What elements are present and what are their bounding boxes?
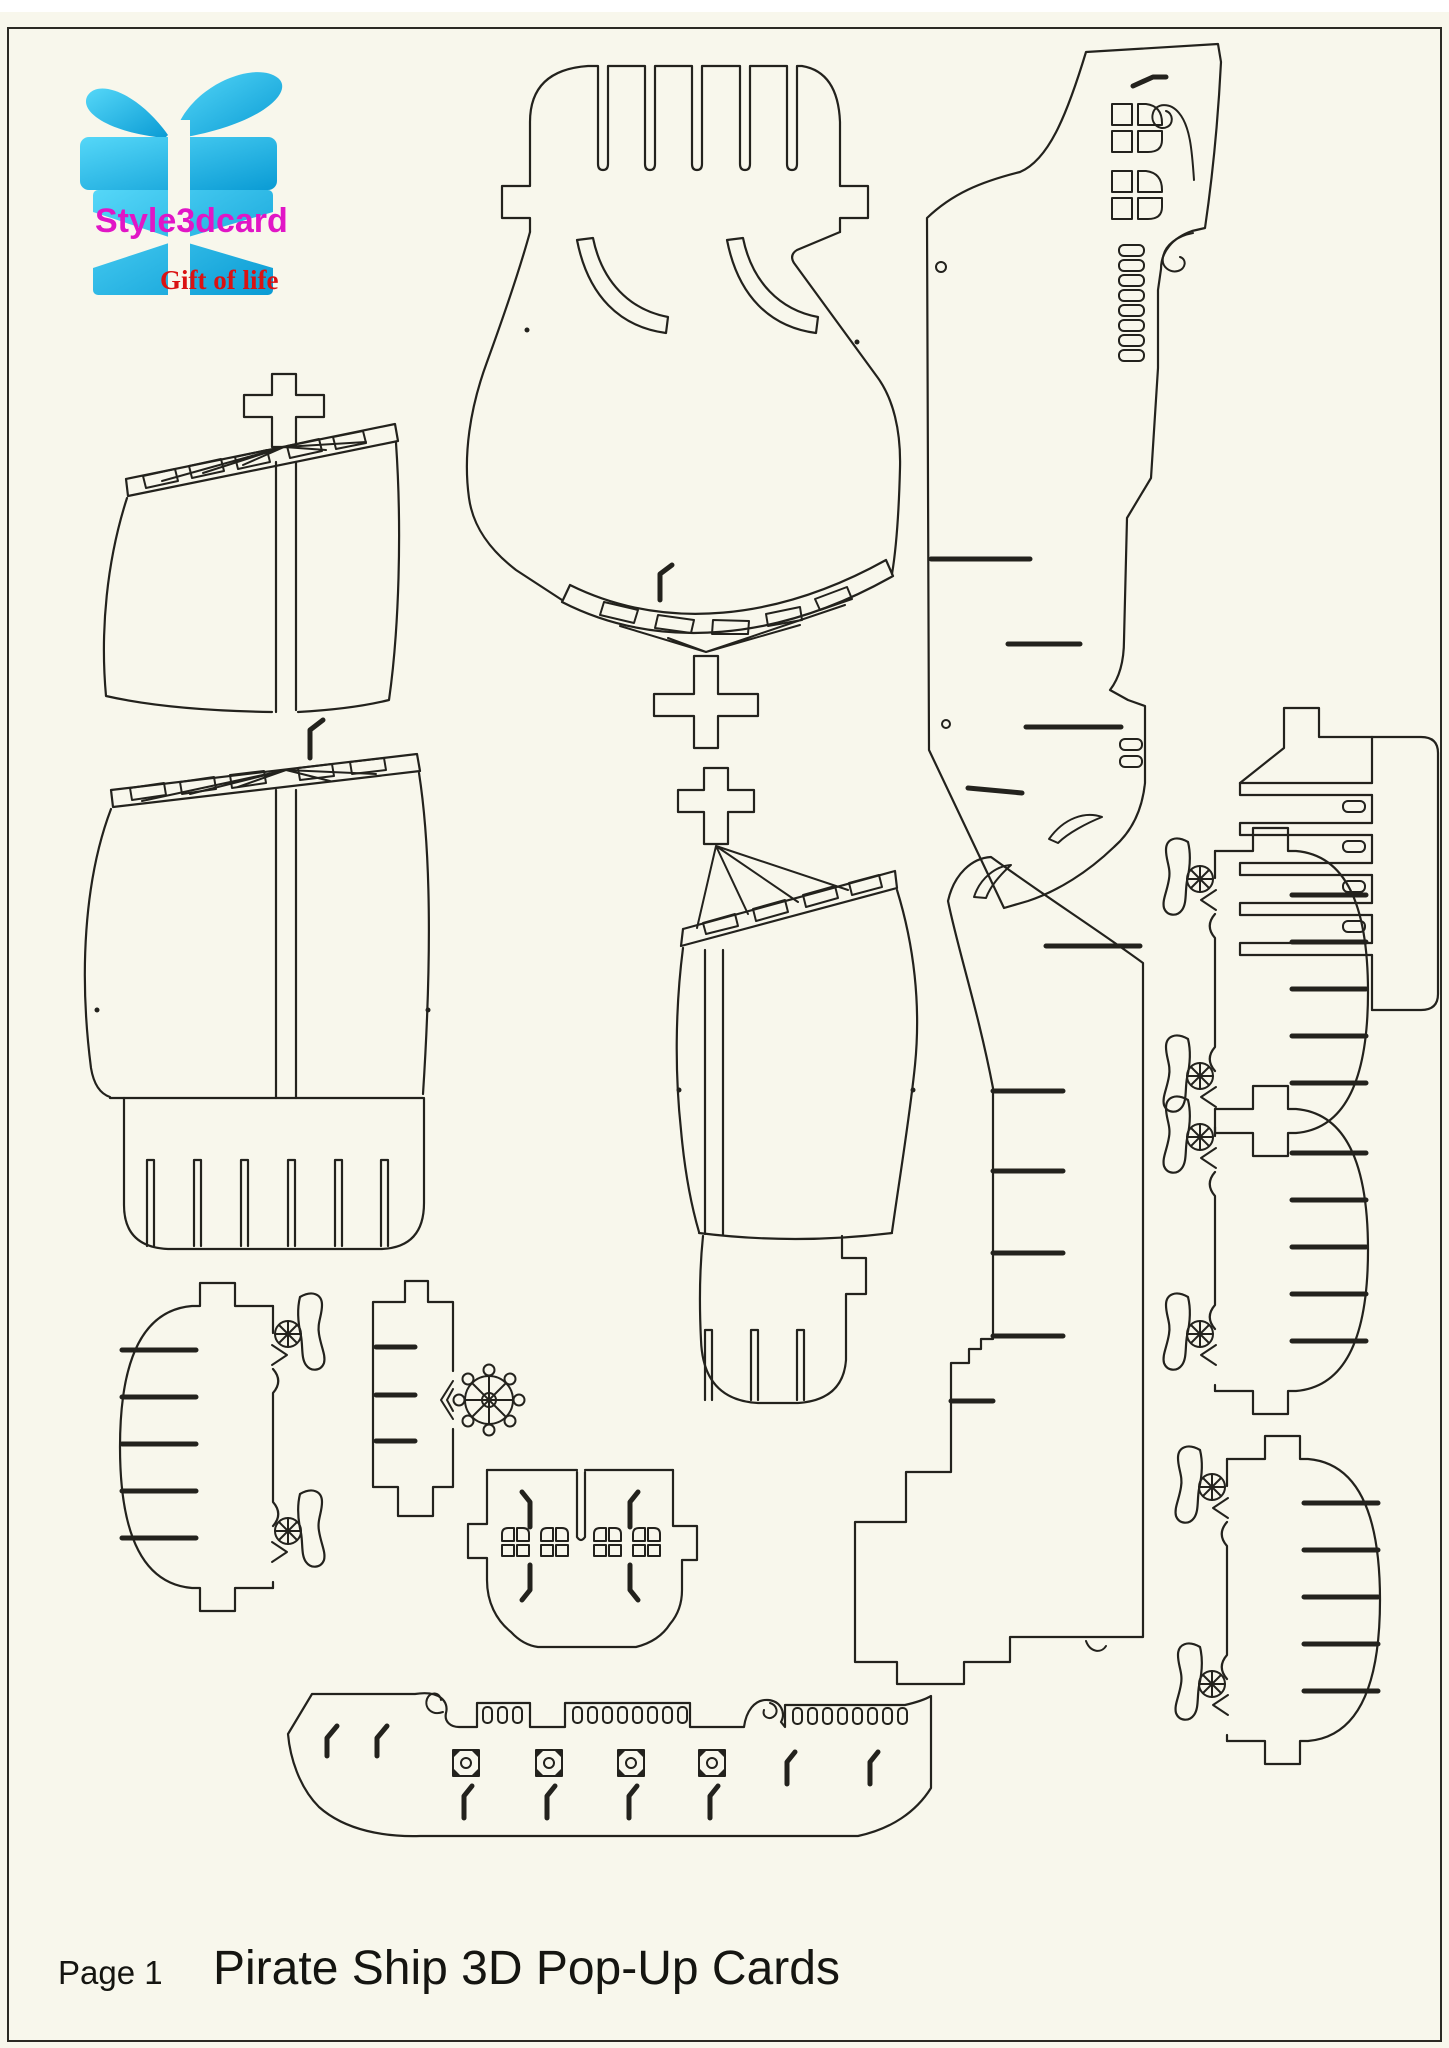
pattern-sheet-page: Style3dcard Gift of life [0,0,1449,2048]
railing-slots [483,1707,907,1724]
pattern-piece-hull-side-railing [288,1693,931,1836]
pattern-piece-deck-cannons-left [120,1283,324,1611]
pattern-piece-mast-support-wheel [373,1281,525,1516]
page-top-margin [0,0,1449,12]
ships-wheel-icon [454,1365,525,1436]
pattern-piece-card-base-center [855,857,1143,1684]
brand-name: Style3dcard [95,202,288,240]
pattern-piece-deck-cannons-lowest [1176,1436,1380,1764]
pattern-piece-slotted-comb-right [1240,708,1438,1010]
pattern-piece-deck-cannons-right-lower [1164,1086,1368,1414]
gun-port-decorations [453,1750,725,1776]
pattern-piece-sail-assembly-middle [677,768,918,1403]
gift-box-icon [80,72,282,295]
brand-tagline: Gift of life [160,265,278,295]
cabin-windows-icon [502,1528,660,1556]
pattern-piece-card-base-top-right [927,44,1221,908]
page-number-label: Page 1 [58,1954,163,1991]
pattern-piece-sail-assembly-top [467,66,900,748]
page-title: Pirate Ship 3D Pop-Up Cards [213,1942,840,1995]
pattern-piece-stern-cabin-windows [468,1470,697,1647]
pattern-piece-sail-assembly-left [85,374,431,1249]
pattern-canvas: Style3dcard Gift of life [0,0,1449,2048]
brand-logo: Style3dcard Gift of life [80,72,288,295]
pattern-piece-deck-cannons-right-upper [1164,828,1368,1156]
